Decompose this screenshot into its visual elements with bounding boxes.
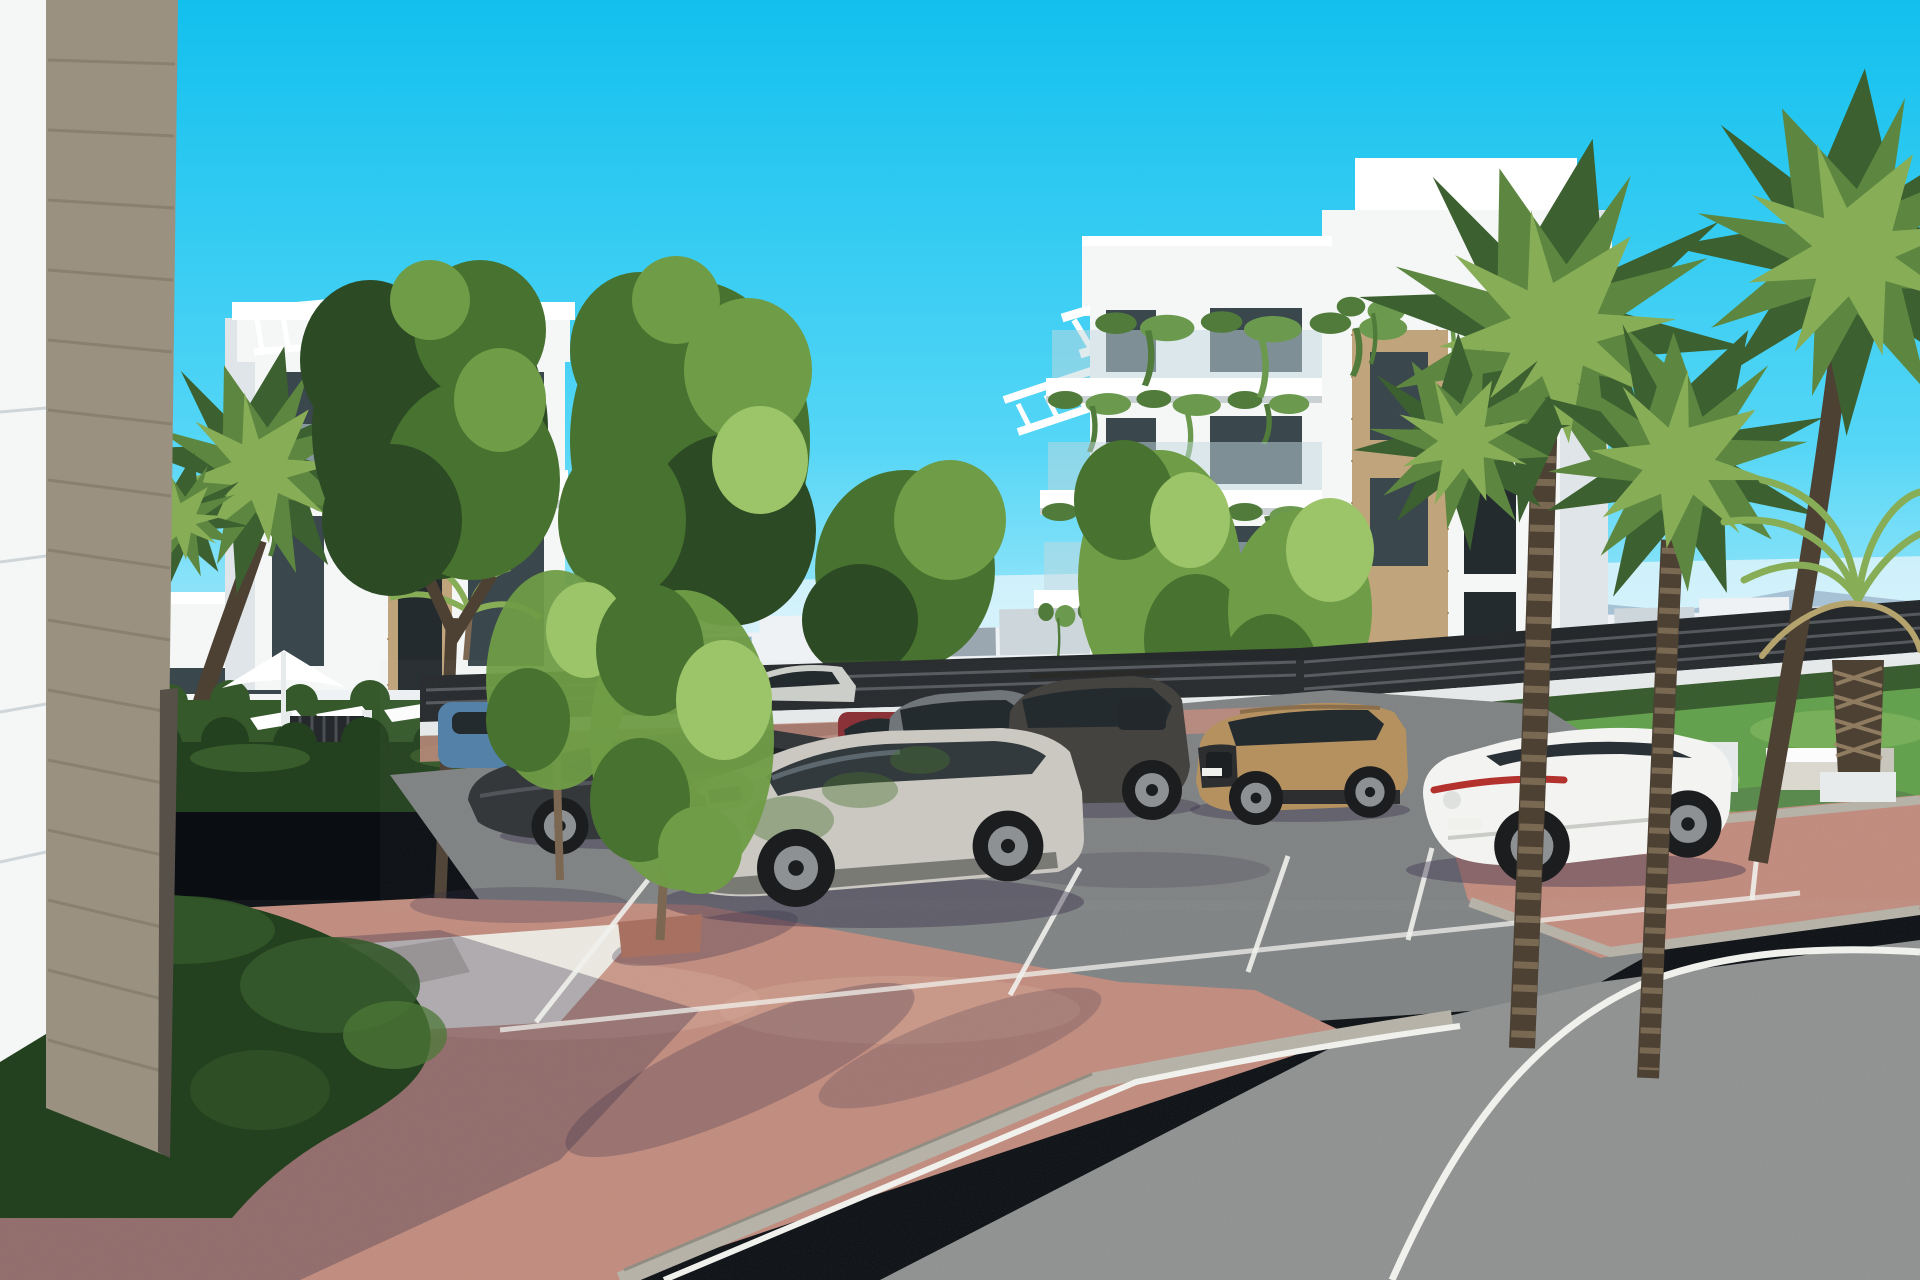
render-stage (0, 0, 1920, 1280)
palm-planter (1820, 772, 1896, 802)
foreground-corner (0, 0, 178, 1158)
suv-tan (1190, 703, 1410, 825)
travertine-pier (46, 0, 178, 1155)
panel-wall (0, 0, 46, 1062)
render-canvas (0, 0, 1920, 1280)
